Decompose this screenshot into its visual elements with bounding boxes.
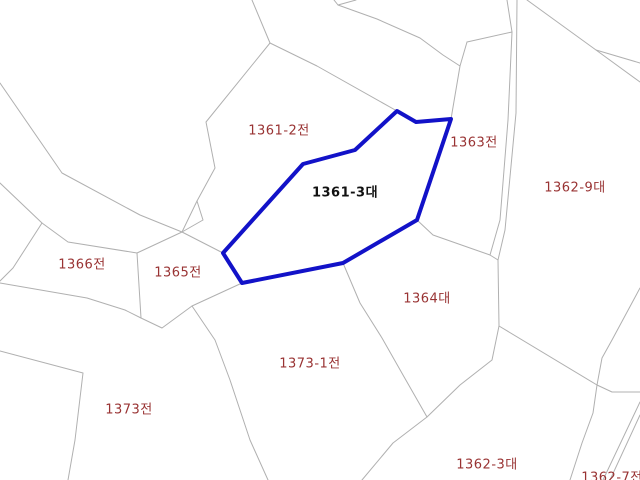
parcel-label-1362-3대: 1362-3대: [456, 454, 518, 473]
parcel-boundary-line: [417, 220, 498, 260]
parcel-boundary-line: [362, 417, 427, 480]
parcel-boundary-line: [334, 0, 460, 66]
parcel-boundary-line: [270, 43, 397, 111]
selected-parcel-label: 1361-3대: [312, 182, 378, 201]
parcel-label-1363전: 1363전: [450, 132, 498, 151]
parcel-label-1364대: 1364대: [403, 288, 451, 307]
parcel-label-1362-9대: 1362-9대: [544, 177, 606, 196]
parcel-boundary-line: [467, 32, 512, 42]
parcel-boundary-line: [192, 306, 268, 480]
parcel-boundary-line: [498, 260, 499, 326]
cadastral-map-viewport[interactable]: 1361-2전1363전1362-9대1366전1365전1364대1373-1…: [0, 0, 640, 480]
parcel-boundaries-layer: [0, 0, 640, 480]
parcel-boundary-line: [499, 326, 597, 385]
parcel-boundary-line: [0, 183, 42, 223]
parcel-boundary-line: [527, 0, 596, 50]
parcel-boundary-line: [597, 385, 640, 392]
parcel-label-1373전: 1373전: [105, 399, 153, 418]
parcel-boundary-line: [137, 253, 141, 318]
parcel-boundary-line: [182, 201, 203, 232]
parcel-boundary-line: [0, 223, 42, 281]
parcel-label-1362-7전: 1362-7전: [581, 467, 640, 480]
parcel-boundary-line: [596, 50, 640, 63]
parcel-boundary-line: [192, 283, 242, 306]
parcel-boundary-line: [596, 50, 640, 82]
parcel-boundary-line: [137, 232, 182, 253]
parcel-boundary-line: [490, 0, 512, 255]
parcel-boundary-line: [0, 351, 83, 480]
parcel-boundary-line: [597, 288, 640, 385]
parcel-boundary-line: [141, 306, 192, 328]
parcel-boundary-line: [451, 42, 467, 119]
parcel-boundary-line: [0, 283, 141, 318]
parcel-label-1366전: 1366전: [58, 254, 106, 273]
parcel-boundary-line: [427, 326, 499, 417]
parcel-label-1373-1전: 1373-1전: [279, 353, 341, 372]
parcel-boundary-line: [338, 0, 356, 5]
parcel-boundary-line: [252, 0, 270, 43]
parcel-boundary-line: [42, 223, 137, 253]
parcel-label-1365전: 1365전: [154, 262, 202, 281]
parcel-label-1361-2전: 1361-2전: [248, 120, 310, 139]
parcel-boundary-line: [182, 232, 223, 253]
parcel-boundary-line: [343, 263, 427, 417]
